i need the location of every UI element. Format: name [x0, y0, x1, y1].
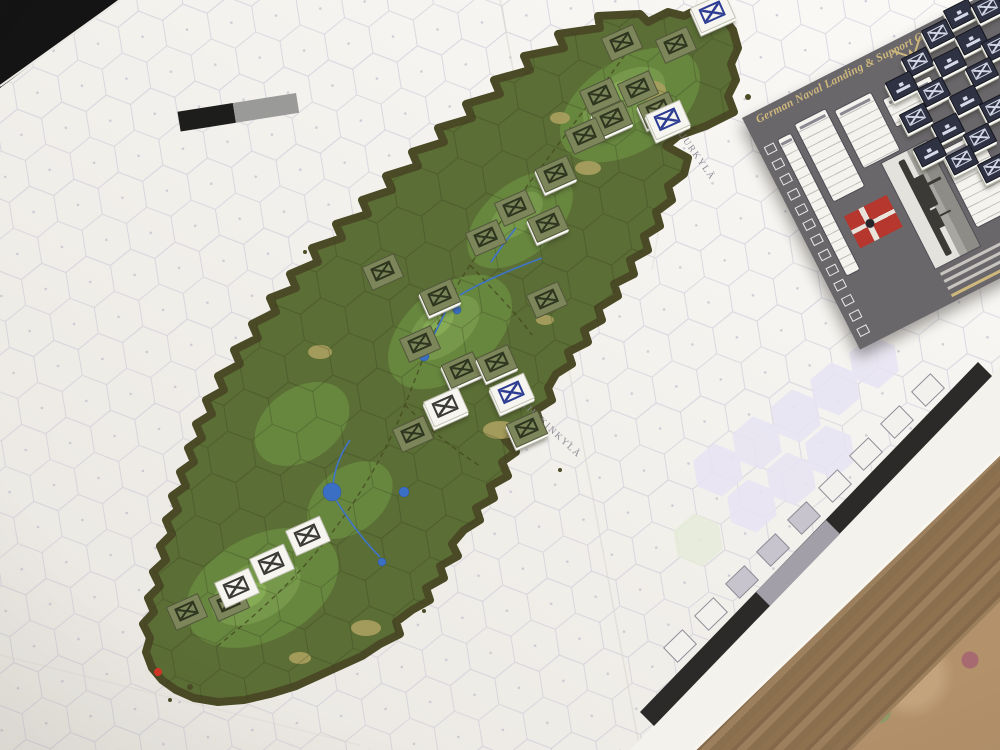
unit-symbol: [663, 33, 688, 55]
map-edge-track-box: [911, 373, 945, 407]
unit-symbol: [449, 358, 474, 380]
unit-counter-stack[interactable]: [285, 515, 331, 556]
ship-symbol: [961, 30, 982, 48]
unit-symbol: [987, 36, 1000, 54]
unit-symbol: [653, 107, 681, 131]
unit-symbol: [473, 226, 498, 248]
ship-symbol: [937, 118, 958, 136]
naval-counter[interactable]: [965, 56, 999, 87]
ship-symbol: [955, 90, 976, 108]
ship-symbol: [949, 4, 970, 22]
unit-symbol: [370, 260, 395, 282]
unit-symbol: [983, 158, 1000, 176]
ship-symbol: [919, 142, 940, 160]
unit-symbol: [905, 108, 926, 126]
naval-counter[interactable]: [977, 152, 1000, 183]
naval-counter[interactable]: [949, 84, 983, 115]
unit-symbol: [293, 523, 321, 547]
naval-counter[interactable]: [979, 92, 1000, 123]
map-edge-track-box: [663, 629, 697, 663]
unit-counter-stack[interactable]: [506, 410, 549, 448]
unit-counter-stack[interactable]: [249, 543, 295, 584]
map-edge-track-box: [756, 533, 790, 567]
unit-counter-stack[interactable]: [166, 593, 209, 631]
unit-counter-stack[interactable]: [489, 372, 535, 413]
unit-counter-stack[interactable]: [399, 325, 442, 363]
unit-symbol: [971, 62, 992, 80]
unit-symbol: [951, 150, 972, 168]
unit-symbol: [535, 212, 560, 234]
naval-counter[interactable]: [899, 102, 933, 133]
unit-symbol: [625, 77, 650, 99]
unit-symbol: [257, 551, 285, 575]
unit-counter-stack[interactable]: [601, 24, 644, 62]
unit-symbol: [543, 162, 568, 184]
ship-symbol: [939, 52, 960, 70]
unit-counter-stack[interactable]: [392, 415, 435, 453]
map-edge-track-box: [694, 597, 728, 631]
unit-symbol: [587, 84, 612, 106]
unit-symbol: [698, 0, 726, 24]
unit-symbol: [222, 575, 250, 599]
unit-symbol: [927, 24, 948, 42]
unit-symbol: [427, 285, 452, 307]
map-edge-track-box: [787, 501, 821, 535]
unit-symbol: [400, 422, 425, 444]
unit-counter-stack[interactable]: [655, 26, 698, 64]
unit-counter-stack[interactable]: [526, 281, 569, 319]
counters-layer: [0, 0, 1000, 750]
unit-symbol: [497, 380, 525, 404]
map-edge-track-box: [818, 469, 852, 503]
naval-counter[interactable]: [971, 0, 1000, 24]
unit-counter-stack[interactable]: [465, 219, 508, 257]
unit-counter-stack[interactable]: [690, 0, 736, 34]
unit-counter-stack[interactable]: [419, 278, 462, 316]
unit-counter-stack[interactable]: [362, 253, 405, 291]
unit-counter-stack[interactable]: [535, 155, 578, 193]
unit-symbol: [572, 124, 597, 146]
map-edge-track-box: [880, 405, 914, 439]
unit-symbol: [977, 0, 998, 17]
map-edge-track-box: [849, 437, 883, 471]
unit-symbol: [174, 600, 199, 622]
unit-symbol: [484, 351, 509, 373]
unit-symbol: [407, 332, 432, 354]
unit-symbol: [923, 82, 944, 100]
unit-symbol: [609, 31, 634, 53]
unit-symbol: [431, 394, 459, 418]
map-edge-track-box: [725, 565, 759, 599]
unit-symbol: [514, 417, 539, 439]
ship-symbol: [891, 76, 912, 94]
unit-counter-stack[interactable]: [423, 386, 469, 427]
unit-symbol: [969, 128, 990, 146]
unit-symbol: [907, 52, 928, 70]
photo-of-wargame-table: SUURKYLÄ KIISKINKYLÄ German Naval Landin…: [0, 0, 1000, 750]
unit-symbol: [534, 288, 559, 310]
unit-symbol: [502, 196, 527, 218]
unit-symbol: [599, 107, 624, 129]
unit-symbol: [985, 98, 1000, 116]
